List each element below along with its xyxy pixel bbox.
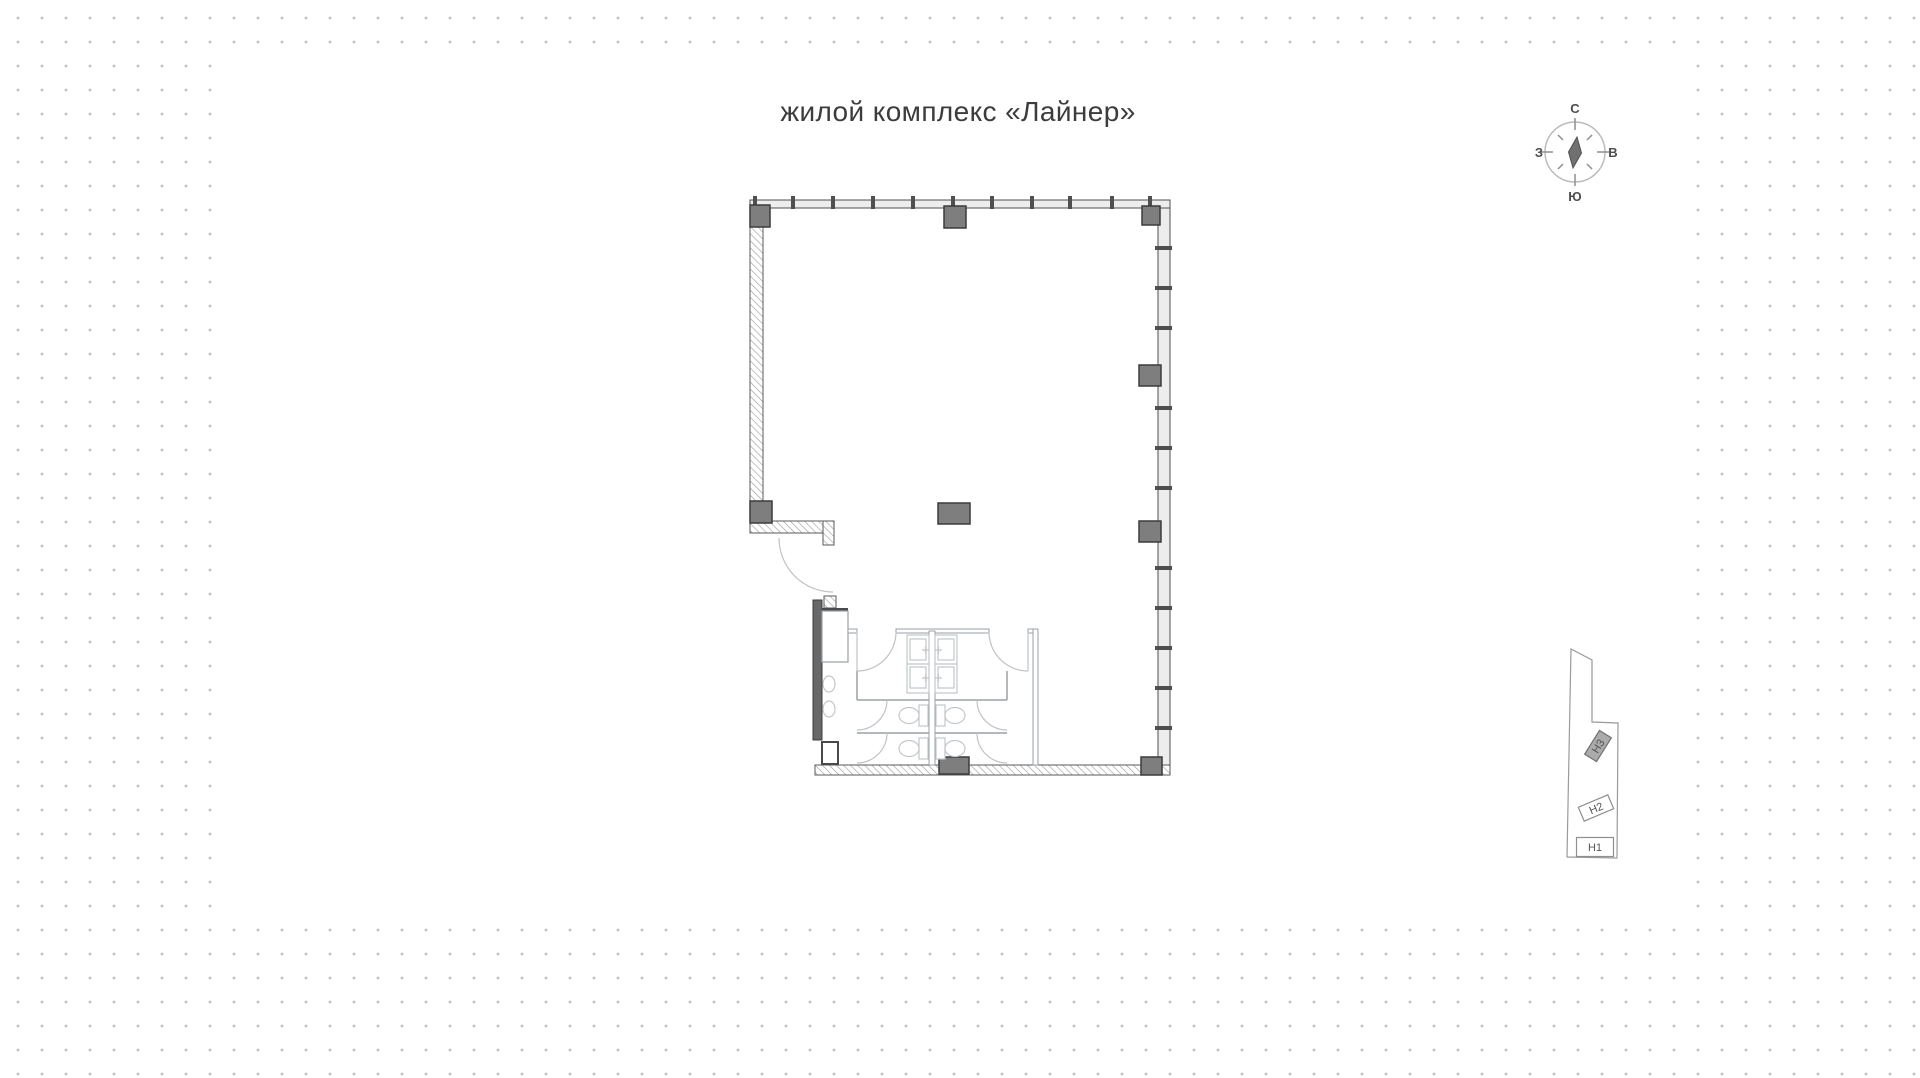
page-background: жилой комплекс «Лайнер» bbox=[0, 0, 1920, 1078]
key-plan: Н3 Н2 Н1 bbox=[1567, 649, 1618, 858]
wall-left bbox=[750, 227, 763, 501]
column bbox=[944, 206, 966, 228]
closet bbox=[822, 611, 848, 662]
compass-needle bbox=[1569, 137, 1582, 168]
compass-east-label: В bbox=[1608, 145, 1617, 160]
column bbox=[1141, 757, 1162, 775]
column bbox=[1139, 365, 1161, 386]
plan-drawing: С Ю З В Н3 Н2 Н1 bbox=[0, 0, 1920, 1078]
column bbox=[1139, 521, 1161, 542]
floor-plan bbox=[750, 196, 1172, 775]
restroom-center-wall bbox=[929, 631, 935, 765]
compass-south-label: Ю bbox=[1568, 189, 1581, 204]
compass-north-label: С bbox=[1570, 101, 1580, 116]
wall-bottom bbox=[815, 765, 1170, 775]
entry-door-arc bbox=[779, 538, 833, 592]
window-wall-right bbox=[1155, 208, 1172, 765]
unit-label-h1: Н1 bbox=[1588, 842, 1602, 854]
shaft bbox=[822, 742, 838, 764]
column bbox=[1142, 206, 1160, 225]
column-entry bbox=[750, 501, 772, 523]
restroom-right-wall bbox=[1033, 629, 1038, 765]
column-freestanding bbox=[938, 503, 970, 524]
compass-rose: С Ю З В bbox=[1535, 101, 1618, 204]
column bbox=[750, 205, 770, 227]
wall-entry-cap bbox=[823, 521, 834, 545]
key-plan-unit-h1[interactable]: Н1 bbox=[1577, 838, 1614, 857]
wall-lobby-stub bbox=[824, 596, 836, 608]
wall-sinks bbox=[823, 676, 835, 717]
compass-west-label: З bbox=[1535, 145, 1543, 160]
